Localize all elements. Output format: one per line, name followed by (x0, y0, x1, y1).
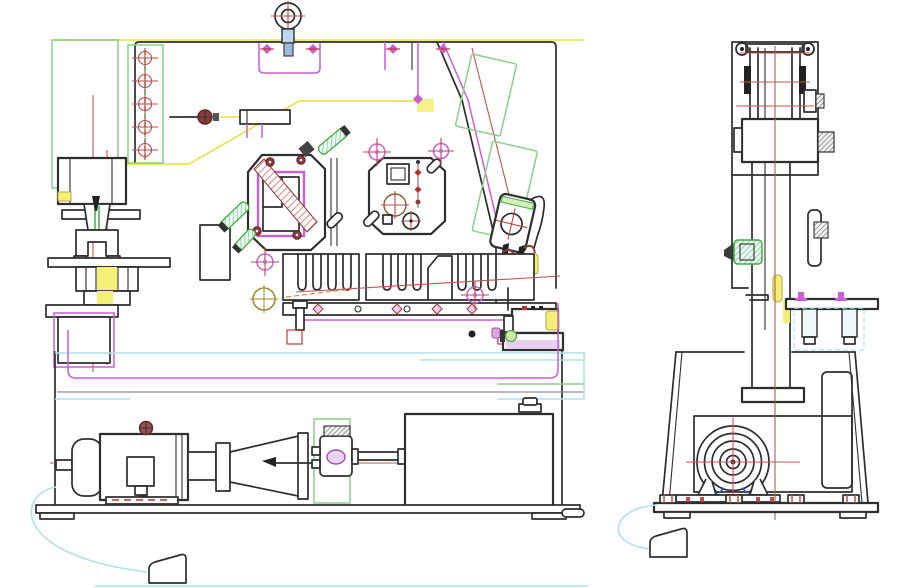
anchor-pad (660, 495, 676, 503)
motor-compartment (694, 416, 852, 492)
grease-fitting (724, 240, 762, 264)
housing-frame (662, 352, 868, 503)
table-bolt (802, 309, 817, 337)
guide-strip (128, 45, 163, 163)
eyebolt-lifting-ring (271, 1, 305, 43)
base-rail (36, 505, 584, 519)
anchor-pad (843, 495, 859, 503)
punch-stripper (76, 230, 118, 256)
motor-mount (698, 479, 716, 495)
bolster-plate (48, 258, 170, 267)
datum-crosshair (251, 248, 279, 276)
punch-station (46, 158, 170, 367)
cylinder-assembly (734, 43, 834, 330)
adjuster-rod (170, 110, 290, 138)
front-view: Front elevation - ironworker general ass… (31, 1, 588, 586)
column-flange (742, 388, 804, 402)
stroke-indicator (773, 275, 782, 302)
table-bolt (842, 309, 857, 337)
dowel-pin (218, 200, 251, 232)
pedestal-flange (46, 305, 118, 317)
gap-capsule (326, 211, 344, 229)
die-block (76, 267, 138, 305)
side-view: Right side elevation - cylinder column a… (618, 42, 878, 557)
cylinder-clevis (489, 193, 536, 254)
spacer-block (200, 225, 230, 280)
gear-pump (312, 419, 352, 503)
work-table (786, 292, 878, 350)
olive-gauge-hole (250, 285, 278, 313)
anchor-pad (726, 495, 742, 503)
bolster-pedestal (58, 317, 110, 363)
cad-drawing-page: Front elevation - ironworker general ass… (0, 0, 900, 588)
dowel-pin (232, 228, 257, 254)
oil-tank (405, 398, 553, 507)
dowel-pin (317, 125, 351, 156)
slotted-die-rail (283, 254, 560, 300)
cad-canvas: Front elevation - ironworker general ass… (0, 0, 900, 588)
terminal-box (127, 457, 154, 486)
suction-pipe (352, 449, 405, 464)
cylinder-gland-block (742, 119, 818, 162)
machine-body-outline (135, 42, 556, 288)
lifting-bracket (259, 43, 320, 73)
access-panel (822, 372, 852, 488)
tool-face-plate (362, 158, 445, 234)
lock-nut-stack (818, 132, 834, 152)
anchor-pad (788, 495, 804, 503)
